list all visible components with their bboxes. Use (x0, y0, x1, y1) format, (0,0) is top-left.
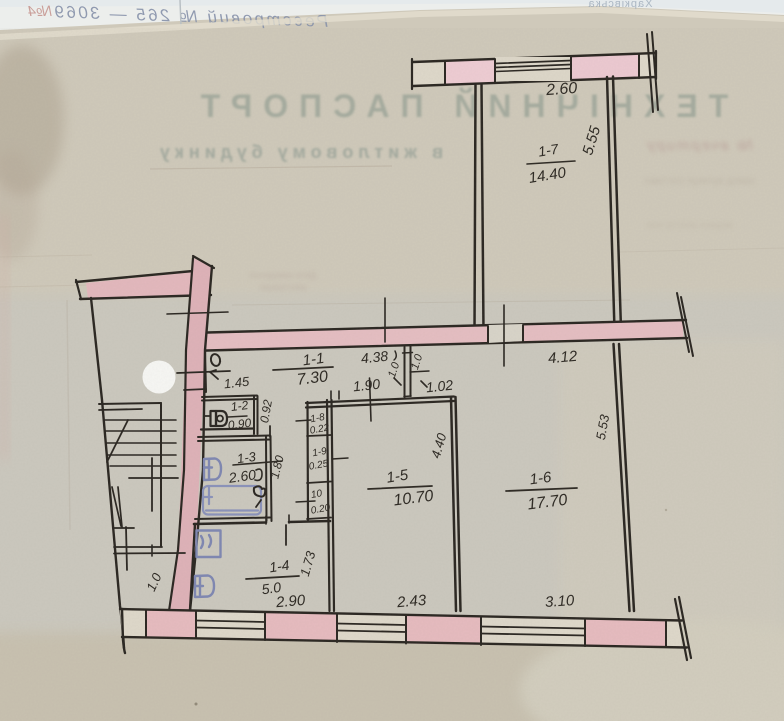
svg-text:№4: №4 (28, 3, 53, 20)
